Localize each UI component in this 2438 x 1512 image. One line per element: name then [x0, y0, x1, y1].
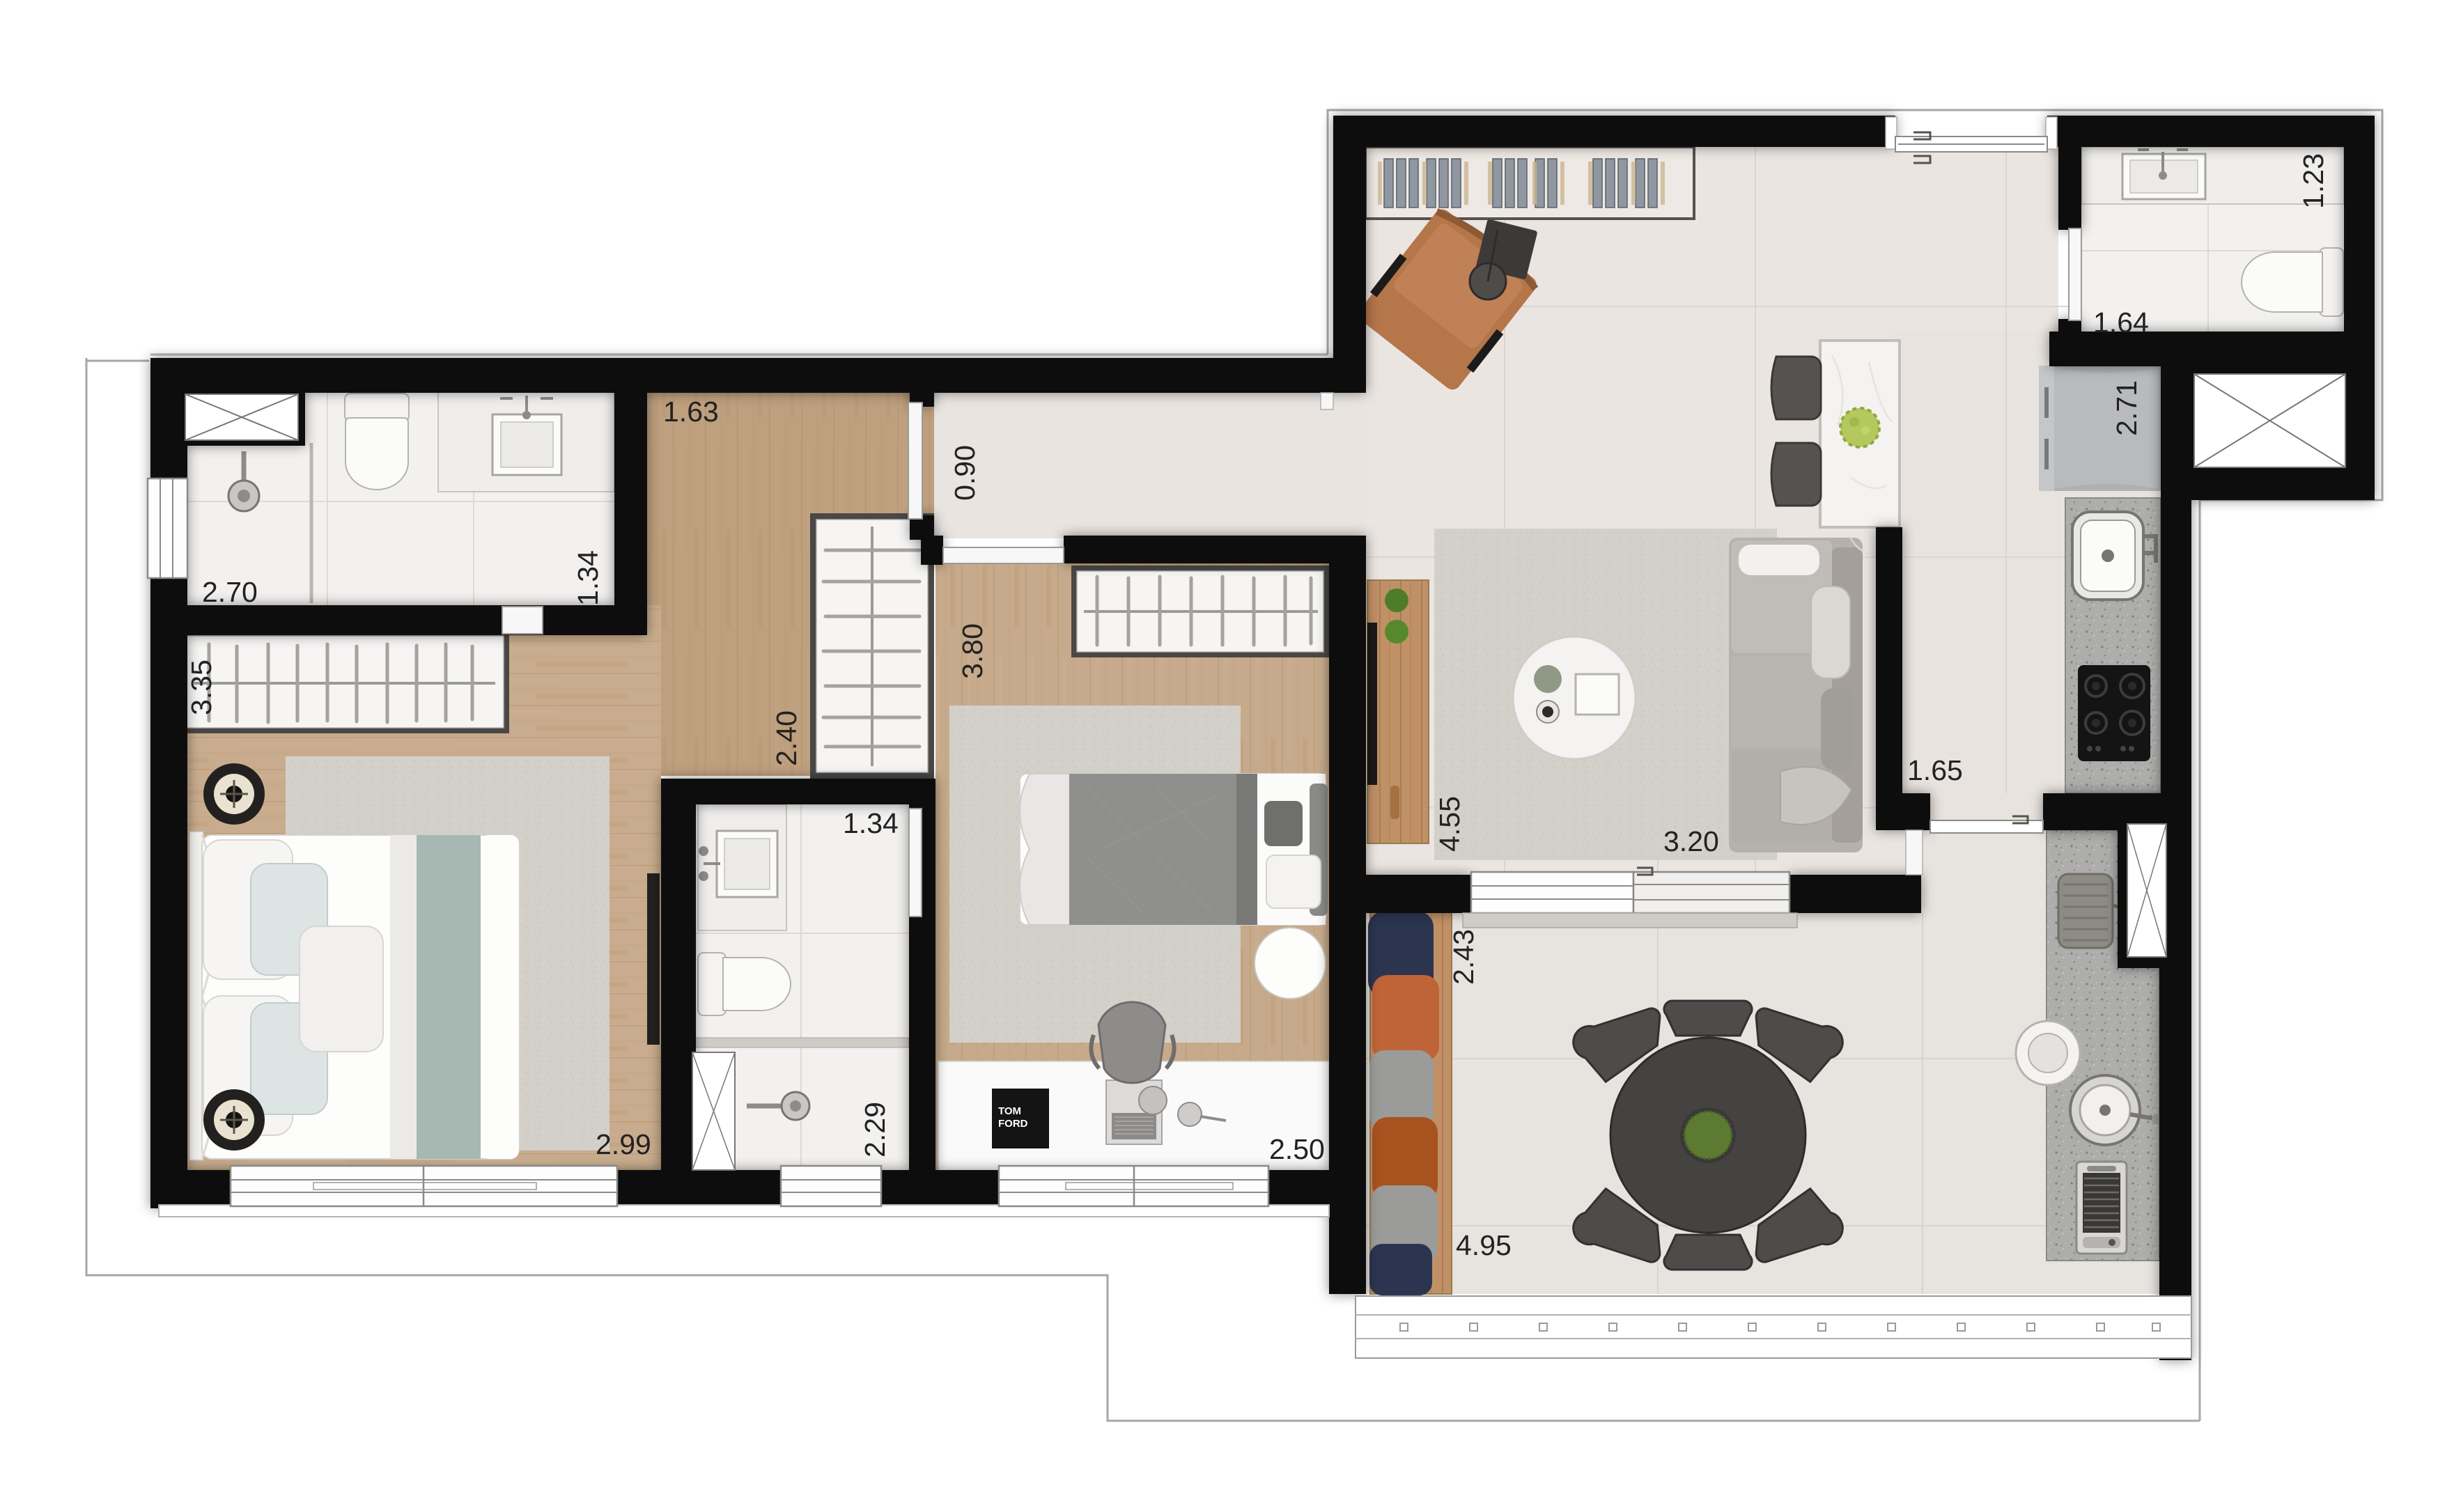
svg-text:1.34: 1.34 [843, 807, 899, 839]
svg-text:2.29: 2.29 [859, 1102, 891, 1158]
svg-text:1.23: 1.23 [2297, 153, 2329, 209]
svg-text:0.90: 0.90 [949, 445, 981, 501]
svg-text:2.40: 2.40 [770, 710, 802, 766]
svg-text:FORD: FORD [998, 1118, 1028, 1130]
svg-text:1.64: 1.64 [2093, 306, 2149, 338]
svg-text:3.80: 3.80 [956, 623, 988, 679]
svg-text:2.70: 2.70 [202, 576, 258, 608]
svg-text:1.63: 1.63 [663, 396, 719, 428]
svg-text:1.34: 1.34 [572, 550, 604, 606]
svg-text:TOM: TOM [998, 1105, 1021, 1117]
svg-text:2.43: 2.43 [1447, 929, 1480, 985]
svg-text:2.50: 2.50 [1269, 1133, 1325, 1165]
svg-text:2.71: 2.71 [2111, 380, 2143, 436]
svg-text:3.20: 3.20 [1663, 825, 1719, 857]
svg-text:3.35: 3.35 [185, 660, 217, 715]
svg-text:4.55: 4.55 [1434, 796, 1466, 852]
svg-text:1.65: 1.65 [1907, 754, 1963, 786]
svg-text:2.99: 2.99 [596, 1128, 651, 1160]
svg-text:4.95: 4.95 [1456, 1229, 1512, 1261]
